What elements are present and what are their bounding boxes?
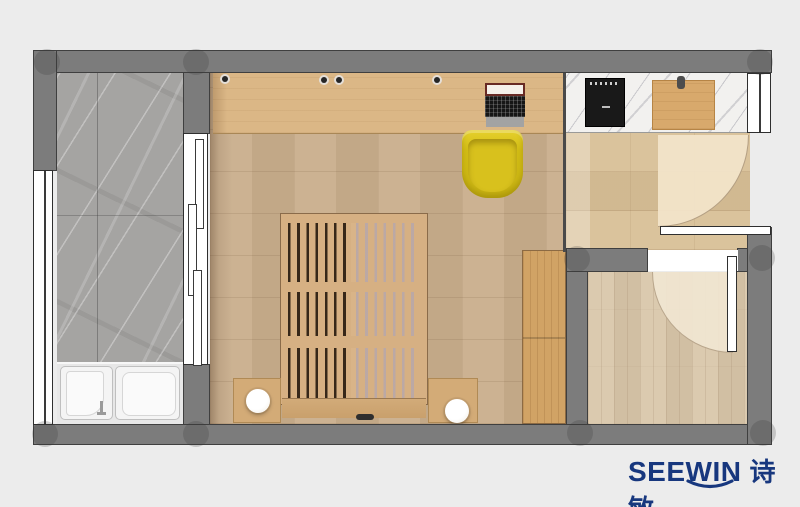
wall-balcony-divider-top xyxy=(183,72,210,134)
cutting-board-handle xyxy=(677,76,685,89)
wall-bed-folded xyxy=(280,213,428,405)
wall-bottom xyxy=(33,424,772,445)
glass-partition-line xyxy=(563,73,566,252)
wall-post xyxy=(749,245,775,271)
wall-post xyxy=(567,420,593,446)
balcony-marble-floor xyxy=(57,73,183,362)
laundry-sink-cabinet xyxy=(60,366,113,420)
room2-doorway xyxy=(648,250,738,271)
entry-door-leaf xyxy=(660,226,771,235)
sink-basin xyxy=(66,371,104,416)
bed-band-separator xyxy=(285,336,425,348)
laptop-screen xyxy=(485,83,525,96)
window-mullion xyxy=(44,171,46,424)
logo-swoosh-icon xyxy=(686,479,734,491)
wall-post xyxy=(564,246,590,272)
yellow-tub-chair xyxy=(462,130,523,198)
room2-door-leaf xyxy=(727,256,737,352)
cooktop-controls xyxy=(590,82,620,85)
wall-post xyxy=(183,49,209,75)
wall-post xyxy=(750,420,776,446)
chair-seat xyxy=(468,139,517,192)
hall-light-strip xyxy=(566,133,590,250)
cooktop-burner-mark xyxy=(602,106,610,108)
cooktop xyxy=(585,78,625,127)
wall-top xyxy=(33,50,772,73)
round-lamp-left xyxy=(246,389,270,413)
wall-balcony-divider-bottom xyxy=(183,364,210,425)
wall-post xyxy=(747,49,773,75)
sliding-panel xyxy=(193,270,202,366)
washing-machine xyxy=(115,366,180,420)
wall-post xyxy=(183,421,209,447)
bed-band-separator xyxy=(285,282,425,292)
bed-center-rail xyxy=(351,223,356,399)
brand-logo: SEEWIN诗敏 xyxy=(628,452,798,496)
laptop xyxy=(485,83,525,127)
wall-post xyxy=(32,421,58,447)
round-lamp-right xyxy=(445,399,469,423)
laptop-palmrest xyxy=(486,117,524,127)
laptop-keyboard xyxy=(485,96,525,117)
balcony-window xyxy=(33,170,53,425)
window-mullion xyxy=(759,74,761,132)
desk-knob xyxy=(321,77,327,83)
desk-knob xyxy=(434,77,440,83)
wardrobe xyxy=(522,250,566,424)
wall-post xyxy=(34,49,60,75)
washer-lid xyxy=(122,372,176,416)
floor-plan-render: SEEWIN诗敏 xyxy=(0,0,800,507)
wall-room2-west xyxy=(566,248,588,425)
desk-knob xyxy=(222,76,228,82)
bed-slats-right xyxy=(356,223,420,399)
desk-knob xyxy=(336,77,342,83)
bed-handle xyxy=(356,414,374,420)
faucet xyxy=(100,401,103,415)
bed-slats-left xyxy=(288,223,352,399)
balcony-sliding-door xyxy=(183,133,208,365)
bed-footer-cabinet xyxy=(282,398,426,418)
hall-window xyxy=(747,73,771,133)
